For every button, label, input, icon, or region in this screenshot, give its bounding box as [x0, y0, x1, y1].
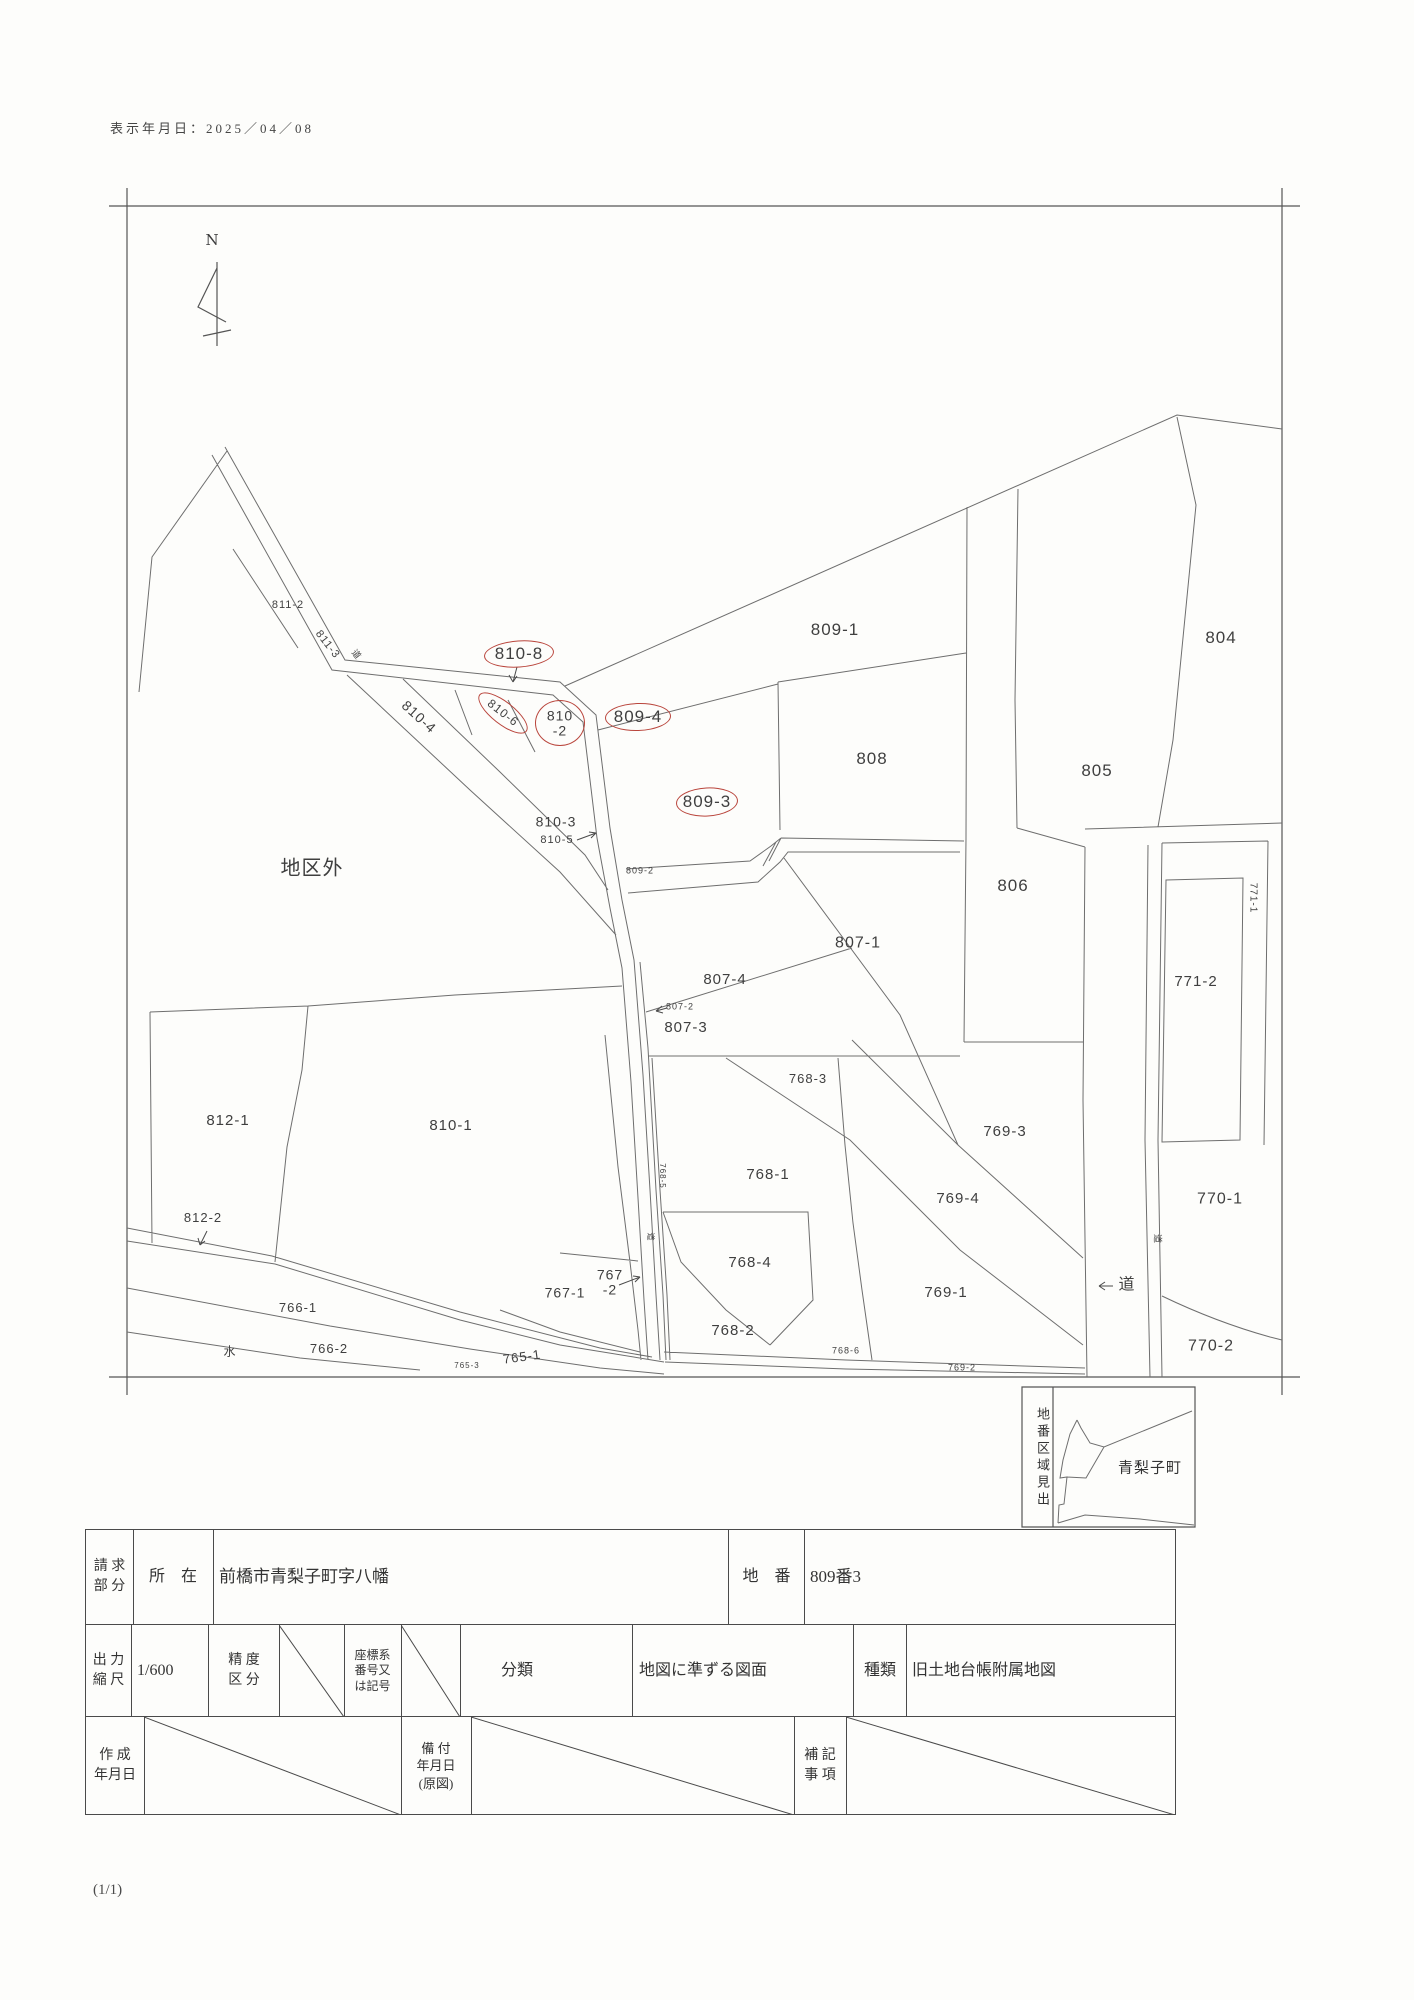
- parcel-label-810-2: 810 -2: [547, 708, 573, 737]
- parcel-label-806: 806: [997, 877, 1028, 895]
- parcel-label-807-4: 807-4: [703, 972, 746, 988]
- cell-kind-label: 種類: [854, 1625, 907, 1717]
- table-row-2: 出 力 縮 尺 1/600 精 度 区 分 座標系 番号又 は記号 分類 地図に…: [86, 1624, 1175, 1717]
- parcel-label-767-2: 767 -2: [597, 1267, 623, 1296]
- north-arrow-icon: [198, 262, 231, 346]
- parcel-label-769-3: 769-3: [983, 1124, 1026, 1140]
- document-page: 表示年月日：2025／04／08 N 811-2811-3道810-8810-6…: [0, 0, 1414, 2000]
- parcel-label-810-1: 810-1: [429, 1118, 472, 1134]
- cell-request-part-label: 請 求 部 分: [86, 1530, 134, 1624]
- cell-creation-date-value-empty: [144, 1717, 402, 1815]
- parcel-label-809-1: 809-1: [811, 621, 859, 639]
- parcel-boundaries: [127, 415, 1282, 1377]
- parcel-label-804: 804: [1205, 629, 1236, 647]
- parcel-label-766-1: 766-1: [279, 1301, 317, 1315]
- water-label: 水: [223, 1346, 236, 1359]
- parcel-label-810-3: 810-3: [536, 815, 577, 830]
- parcel-label-765-3: 765-3: [454, 1362, 479, 1370]
- outside-district-label: 地区外: [281, 859, 344, 880]
- cell-lot-number-value: 809番3: [804, 1530, 1175, 1624]
- cell-output-scale-label: 出 力 縮 尺: [86, 1625, 132, 1717]
- cell-supplementary-notes-value-empty: [846, 1717, 1175, 1815]
- cell-location-value: 前橋市青梨子町字八幡: [213, 1530, 729, 1624]
- parcel-label-768-5: 768-5: [658, 1163, 666, 1188]
- parcel-label-809-4: 809-4: [614, 708, 662, 726]
- north-label: N: [205, 231, 218, 249]
- road-label: 道: [646, 1233, 654, 1242]
- parcel-label-766-2: 766-2: [310, 1342, 348, 1356]
- parcel-label-769-4: 769-4: [936, 1191, 979, 1207]
- table-row-3: 作 成 年月日 備 付 年月日 (原図) 補 記 事 項: [86, 1716, 1175, 1815]
- cell-precision-class-value-empty: [279, 1625, 345, 1717]
- parcel-label-770-1: 770-1: [1197, 1192, 1243, 1209]
- cell-output-scale-value: 1/600: [131, 1625, 209, 1717]
- parcel-label-768-4: 768-4: [728, 1255, 771, 1271]
- cell-location-label: 所 在: [133, 1530, 214, 1624]
- info-table: 請 求 部 分 所 在 前橋市青梨子町字八幡 地 番 809番3 出 力 縮 尺…: [85, 1529, 1176, 1815]
- cell-filing-date-value-empty: [471, 1717, 795, 1815]
- parcel-label-770-2: 770-2: [1188, 1339, 1234, 1356]
- parcel-label-769-2: 769-2: [948, 1363, 976, 1372]
- parcel-label-809-2: 809-2: [626, 866, 654, 875]
- legend-area-label: 青梨子町: [1118, 1457, 1182, 1478]
- parcel-label-807-3: 807-3: [664, 1020, 707, 1036]
- parcel-label-811-2: 811-2: [272, 600, 304, 612]
- parcel-label-807-2: 807-2: [666, 1002, 694, 1011]
- parcel-label-767-1: 767-1: [545, 1286, 586, 1301]
- parcel-label-805: 805: [1081, 762, 1112, 780]
- cell-coordinate-system-value-empty: [401, 1625, 461, 1717]
- road-label: 道: [1118, 1278, 1135, 1295]
- cell-coordinate-system-label: 座標系 番号又 は記号: [344, 1625, 402, 1717]
- parcel-label-768-2: 768-2: [711, 1323, 754, 1339]
- cell-kind-value: 旧土地台帳附属地図: [906, 1625, 1175, 1717]
- parcel-label-812-2: 812-2: [184, 1211, 222, 1225]
- cell-supplementary-notes-label: 補 記 事 項: [794, 1717, 847, 1815]
- parcel-label-769-1: 769-1: [924, 1285, 967, 1301]
- parcel-label-768-3: 768-3: [789, 1072, 827, 1086]
- cell-creation-date-label: 作 成 年月日: [86, 1717, 145, 1815]
- parcel-label-807-1: 807-1: [835, 936, 881, 953]
- table-row-1: 請 求 部 分 所 在 前橋市青梨子町字八幡 地 番 809番3: [86, 1530, 1175, 1624]
- parcel-label-768-1: 768-1: [746, 1167, 789, 1183]
- parcel-label-810-8: 810-8: [495, 645, 543, 663]
- parcel-label-810-5: 810-5: [540, 835, 573, 847]
- cell-lot-number-label: 地 番: [729, 1530, 805, 1624]
- cell-classification-label: 分類: [460, 1625, 633, 1717]
- parcel-label-771-2: 771-2: [1174, 974, 1217, 990]
- road-label: 道: [1152, 1234, 1161, 1244]
- parcel-label-809-3: 809-3: [683, 793, 731, 811]
- cell-precision-class-label: 精 度 区 分: [209, 1625, 280, 1717]
- cell-classification-value: 地図に準ずる図面: [633, 1625, 854, 1717]
- parcel-label-812-1: 812-1: [206, 1113, 249, 1129]
- parcel-label-808: 808: [856, 750, 887, 768]
- cell-filing-date-label: 備 付 年月日 (原図): [401, 1717, 472, 1815]
- page-indicator: (1/1): [93, 1882, 122, 1899]
- parcel-label-768-6: 768-6: [832, 1346, 860, 1355]
- parcel-label-771-1: 771-1: [1247, 883, 1258, 914]
- legend-vertical-title: 地番区域見出: [1024, 1394, 1052, 1522]
